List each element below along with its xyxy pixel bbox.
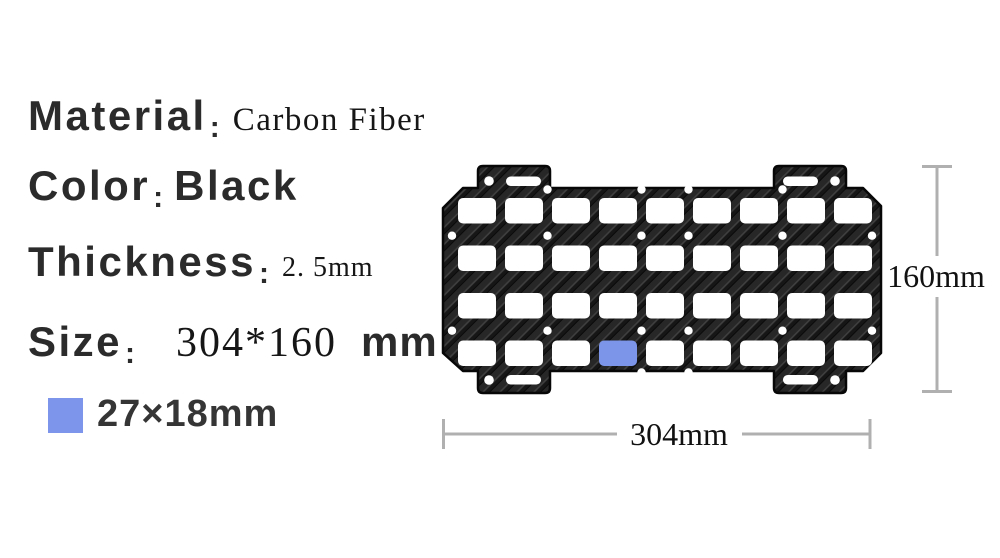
thickness-colon: : <box>259 259 269 289</box>
size-colon: : <box>125 339 135 369</box>
thickness-label: Thickness <box>28 241 256 283</box>
mounting-hole <box>684 185 692 193</box>
cutout <box>458 293 496 319</box>
color-value: Black <box>174 165 299 207</box>
cutout <box>693 246 731 272</box>
height-dimension-label: 160mm <box>887 258 985 294</box>
cutout <box>646 198 684 224</box>
tab-hole <box>830 176 840 186</box>
cutout <box>552 246 590 272</box>
cutout <box>646 293 684 319</box>
mounting-hole <box>448 232 456 240</box>
strap-slot <box>506 375 541 385</box>
cutout <box>458 246 496 272</box>
tab-hole <box>484 176 494 186</box>
mounting-hole <box>778 327 786 335</box>
cutout <box>505 198 543 224</box>
cutout <box>505 293 543 319</box>
cutout <box>740 341 778 367</box>
mounting-hole <box>543 232 551 240</box>
mounting-hole <box>868 327 876 335</box>
color-label: Color <box>28 165 150 207</box>
thickness-value: 2. 5mm <box>282 254 374 282</box>
mounting-hole <box>684 368 692 376</box>
mounting-hole <box>637 232 645 240</box>
cutout <box>787 246 825 272</box>
cutout <box>693 293 731 319</box>
cutout <box>740 293 778 319</box>
highlighted-cutout <box>599 341 637 367</box>
cutout <box>693 341 731 367</box>
cutout <box>552 341 590 367</box>
color-colon: : <box>153 183 163 213</box>
spec-row-color: Color : Black <box>28 165 299 207</box>
mounting-hole <box>778 185 786 193</box>
spec-row-thickness: Thickness : 2. 5mm <box>28 241 374 283</box>
mounting-hole <box>684 232 692 240</box>
width-dimension-label: 304mm <box>630 416 728 452</box>
cutout <box>834 246 872 272</box>
cutout <box>646 246 684 272</box>
cutout <box>646 341 684 367</box>
mounting-hole <box>684 327 692 335</box>
mounting-hole <box>637 185 645 193</box>
spec-row-size: Size : 304*160 mm <box>28 321 438 364</box>
spec-row-material: Material : Carbon Fiber <box>28 95 426 137</box>
cutout <box>458 198 496 224</box>
highlight-swatch <box>48 398 83 433</box>
mounting-hole <box>543 185 551 193</box>
cutout <box>740 246 778 272</box>
cutout <box>505 341 543 367</box>
size-unit: mm <box>361 321 438 363</box>
mounting-hole <box>637 327 645 335</box>
tab-hole <box>484 375 494 385</box>
cutout <box>693 198 731 224</box>
highlight-legend: 27×18mm <box>48 396 278 434</box>
tab-hole <box>830 375 840 385</box>
cutout <box>787 293 825 319</box>
cutout <box>834 293 872 319</box>
cutout <box>599 198 637 224</box>
strap-slot <box>783 177 818 187</box>
strap-slot <box>506 177 541 187</box>
mounting-hole <box>637 368 645 376</box>
product-spec-image: Material : Carbon Fiber Color : Black Th… <box>0 0 1000 558</box>
size-value: 304*160 <box>176 322 337 364</box>
cutout <box>834 198 872 224</box>
highlight-size-label: 27×18mm <box>97 395 278 433</box>
panel-photo: 160mm 304mm <box>430 150 990 460</box>
cutout <box>834 341 872 367</box>
cutout <box>740 198 778 224</box>
cutout <box>458 341 496 367</box>
size-label: Size <box>28 321 122 363</box>
material-label: Material <box>28 95 207 137</box>
strap-slot <box>783 375 818 385</box>
mounting-hole <box>868 232 876 240</box>
material-colon: : <box>210 113 220 143</box>
material-value: Carbon Fiber <box>233 104 426 137</box>
cutout <box>599 293 637 319</box>
mounting-hole <box>778 232 786 240</box>
cutout <box>599 246 637 272</box>
cutout <box>505 246 543 272</box>
cutout <box>787 198 825 224</box>
mounting-hole <box>448 327 456 335</box>
mounting-hole <box>543 327 551 335</box>
cutout <box>787 341 825 367</box>
cutout <box>552 293 590 319</box>
cutout <box>552 198 590 224</box>
